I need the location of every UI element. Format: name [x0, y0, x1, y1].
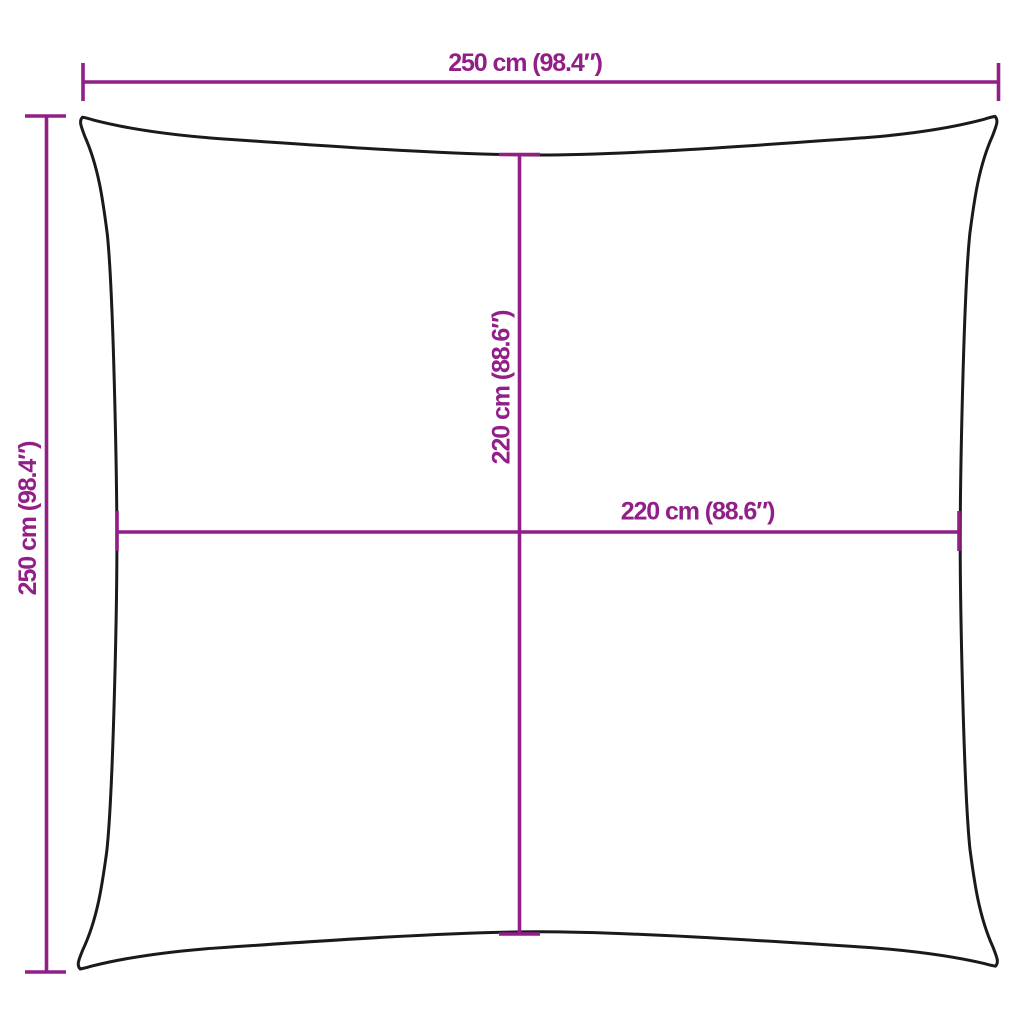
svg-text:250 cm (98.4″): 250 cm (98.4″) [14, 441, 42, 595]
svg-text:220 cm (88.6″): 220 cm (88.6″) [621, 498, 775, 526]
svg-text:220 cm (88.6″): 220 cm (88.6″) [488, 310, 516, 464]
svg-text:250 cm (98.4″): 250 cm (98.4″) [448, 49, 602, 77]
